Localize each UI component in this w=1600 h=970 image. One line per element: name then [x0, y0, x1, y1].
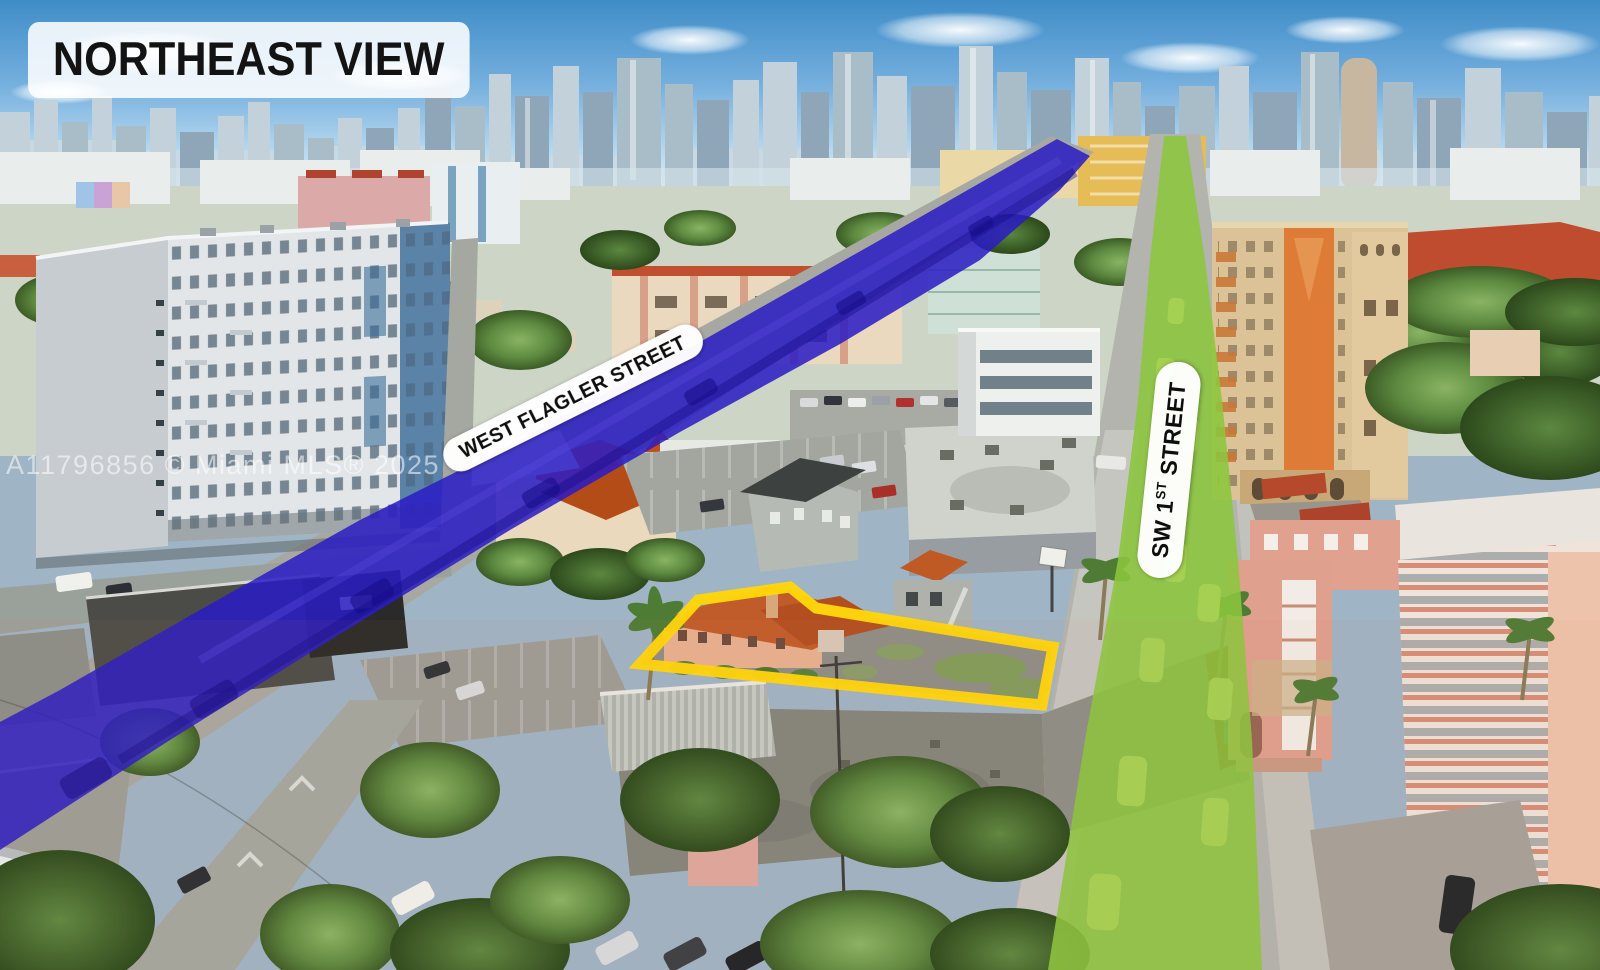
aerial-photo-canvas: [0, 0, 1600, 970]
four-story-building: [958, 328, 1100, 436]
aerial-photo: NORTHEAST VIEW WEST FLAGLER STREET SW 1S…: [0, 0, 1600, 970]
view-direction-badge: NORTHEAST VIEW: [28, 22, 469, 98]
view-direction-label: NORTHEAST VIEW: [53, 32, 445, 85]
mls-watermark: A11796856 © Miami MLS® 2025: [6, 450, 440, 481]
